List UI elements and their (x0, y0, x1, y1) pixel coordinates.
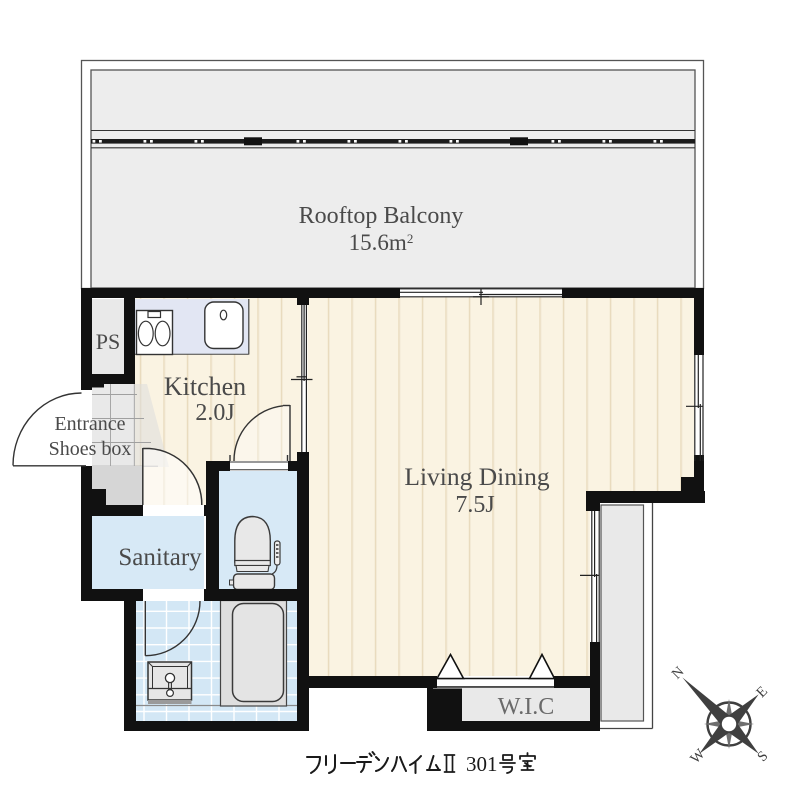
svg-text:Sanitary: Sanitary (118, 544, 202, 571)
svg-text:Entrance: Entrance (54, 413, 125, 435)
svg-text:15.6m2: 15.6m2 (349, 230, 414, 255)
svg-text:301: 301 (466, 752, 498, 776)
svg-text:W.I.C: W.I.C (498, 694, 554, 720)
svg-text:Shoes box: Shoes box (49, 438, 132, 460)
svg-text:Rooftop Balcony: Rooftop Balcony (299, 203, 464, 229)
svg-text:Kitchen: Kitchen (164, 372, 246, 401)
svg-text:Living Dining: Living Dining (404, 462, 549, 491)
svg-text:2.0J: 2.0J (195, 400, 234, 426)
svg-text:7.5J: 7.5J (455, 492, 494, 518)
svg-text:PS: PS (96, 329, 120, 354)
